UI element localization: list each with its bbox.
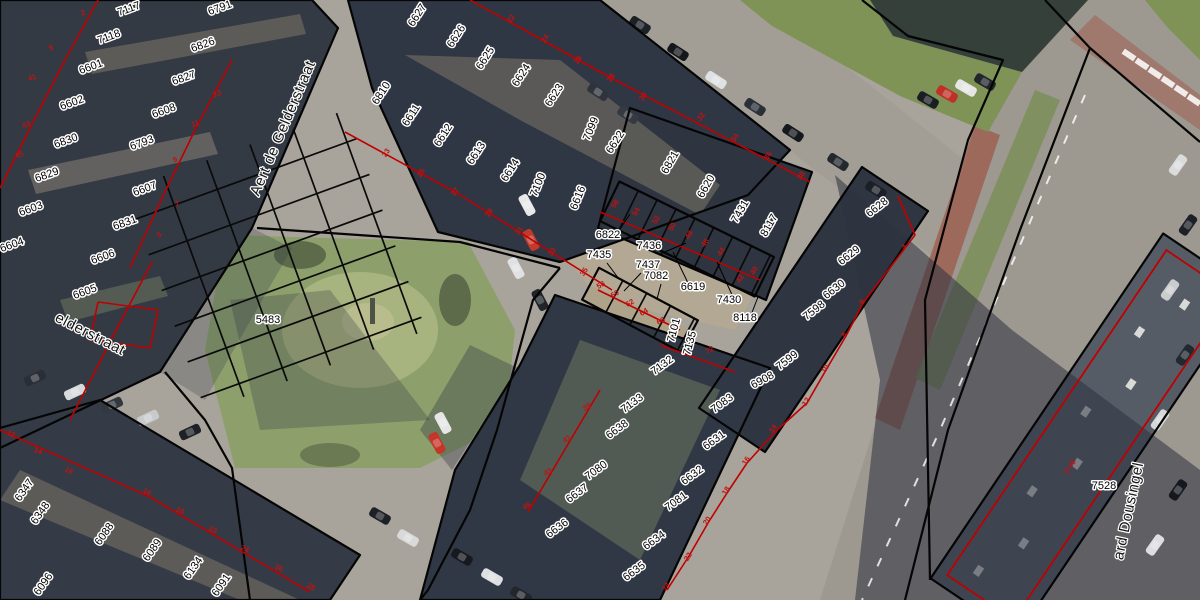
parcel-number-label: 8118 <box>733 312 757 324</box>
parcel-number-label: 5483 <box>256 314 280 326</box>
map-canvas[interactable]: 4143452913119752224262830323436382325272… <box>0 0 1200 600</box>
parcel-number-label: 7436 <box>637 240 661 252</box>
cadastral-map-screen: 4143452913119752224262830323436382325272… <box>0 0 1200 600</box>
parcel-number-label: 6822 <box>596 229 620 241</box>
parcel-number-label: 7528 <box>1092 480 1116 492</box>
parcel-number-label: 6619 <box>681 281 705 293</box>
parcel-number-label: 7430 <box>717 294 741 306</box>
parcel-number-label: 7082 <box>644 270 668 282</box>
parcel-number-label: 7435 <box>587 249 611 261</box>
